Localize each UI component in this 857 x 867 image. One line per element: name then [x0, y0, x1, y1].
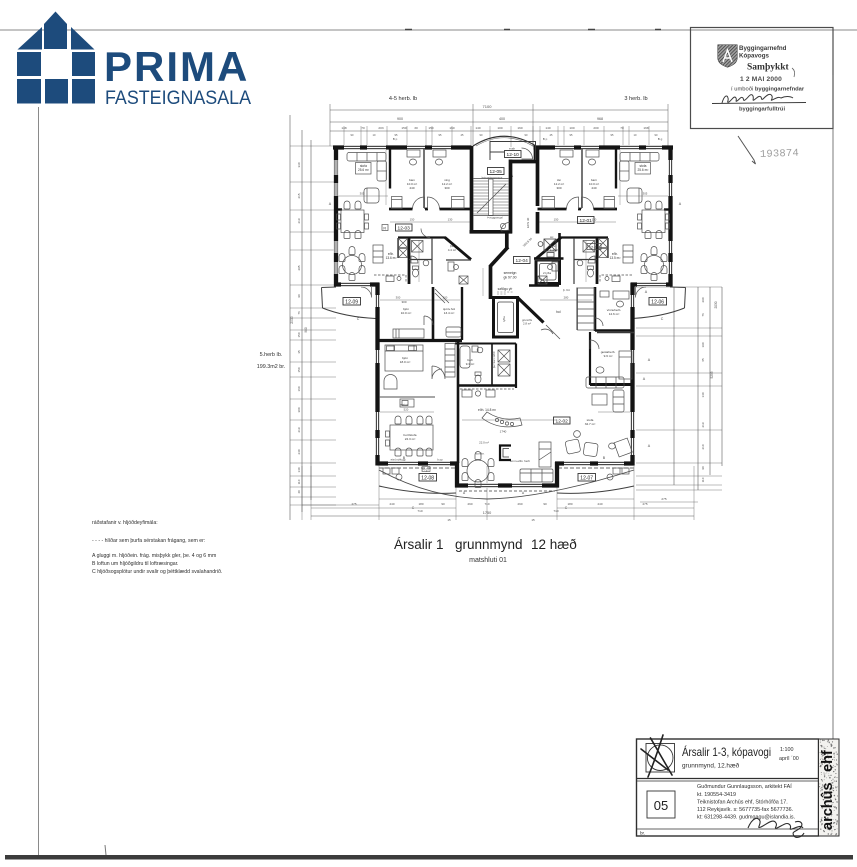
svg-text:710: 710 [417, 509, 422, 513]
svg-text:hol: hol [556, 310, 561, 314]
svg-text:90: 90 [525, 133, 528, 137]
svg-text:eðh. 14.8 m²: eðh. 14.8 m² [478, 407, 496, 412]
svg-text:lyfta: lyfta [502, 316, 506, 322]
svg-text:A gluggi m. hljóðein. frág. m: A gluggi m. hljóðein. frág. misþykk gler… [92, 552, 216, 559]
svg-text:VECS 30: VECS 30 [522, 236, 533, 247]
svg-text:150: 150 [554, 218, 559, 222]
svg-text:br.: br. [640, 831, 645, 836]
svg-text:12-03: 12-03 [398, 226, 411, 232]
svg-text:305: 305 [643, 192, 648, 196]
svg-text:70: 70 [620, 126, 624, 130]
svg-text:150: 150 [410, 218, 415, 222]
svg-text:7100: 7100 [483, 104, 493, 109]
svg-text:150: 150 [428, 126, 433, 130]
svg-text:90: 90 [351, 133, 354, 137]
svg-text:3 herb. lb: 3 herb. lb [624, 96, 647, 102]
svg-text:100: 100 [497, 126, 502, 130]
svg-text:219: 219 [297, 218, 301, 223]
svg-text:B: B [603, 456, 606, 460]
svg-text:240: 240 [297, 449, 301, 454]
svg-text:110: 110 [297, 479, 301, 484]
svg-text:70: 70 [361, 126, 365, 130]
svg-text:12-06: 12-06 [651, 299, 664, 305]
svg-text:95: 95 [439, 133, 442, 137]
svg-text:PRIMA: PRIMA [104, 43, 249, 90]
svg-text:190: 190 [701, 342, 705, 347]
svg-text:þ. föt: þ. föt [563, 288, 570, 292]
svg-text:968: 968 [597, 117, 603, 121]
svg-text:275: 275 [642, 502, 647, 506]
svg-text:kt: 631298-4439. gudmgagu@isla: kt: 631298-4439. gudmgagu@islandia.is. [697, 815, 795, 821]
svg-text:9.3 m²: 9.3 m² [466, 362, 475, 366]
svg-text:219: 219 [701, 422, 705, 427]
svg-text:grunnmynd, 12.hæð: grunnmynd, 12.hæð [682, 762, 740, 770]
svg-text:90: 90 [543, 502, 547, 506]
svg-text:- - - - hlíðar sem þurfa sérst: - - - - hlíðar sem þurfa sérstakan frága… [92, 537, 205, 544]
svg-text:240: 240 [597, 502, 602, 506]
svg-text:110: 110 [701, 477, 705, 482]
svg-text:160: 160 [517, 126, 522, 130]
svg-text:13.6 m²: 13.6 m² [386, 256, 397, 260]
svg-text:hringstigagangur: hringstigagangur [482, 175, 503, 179]
svg-text:520: 520 [404, 408, 409, 412]
svg-text:A: A [679, 202, 682, 206]
svg-text:12-09: 12-09 [345, 299, 358, 305]
svg-text:210: 210 [701, 444, 705, 449]
svg-text:í umboði byggingarnefndar: í umboði byggingarnefndar [731, 86, 805, 93]
svg-text:semeign: semeign [504, 271, 517, 275]
svg-text:300: 300 [444, 186, 449, 190]
svg-text:300: 300 [401, 300, 406, 304]
svg-text:148: 148 [341, 126, 346, 130]
svg-text:35: 35 [297, 350, 301, 354]
svg-text:275: 275 [351, 502, 356, 506]
svg-text:b.op: b.op [437, 458, 443, 462]
svg-text:150: 150 [297, 332, 301, 337]
svg-text:900: 900 [304, 327, 308, 333]
svg-text:160: 160 [449, 126, 454, 130]
svg-text:240: 240 [389, 502, 394, 506]
svg-text:B p: B p [543, 137, 548, 141]
svg-text:12-02: 12-02 [556, 419, 569, 425]
svg-text:Samþykkt: Samþykkt [747, 63, 790, 73]
svg-text:275: 275 [661, 497, 666, 501]
svg-text:2.8 m²: 2.8 m² [523, 322, 531, 326]
svg-text:10.0 m²: 10.0 m² [401, 311, 412, 315]
svg-text:25.6 m²: 25.6 m² [637, 168, 648, 172]
svg-text:12-01: 12-01 [580, 218, 593, 224]
svg-text:Ársalir 1-3, kópavogi: Ársalir 1-3, kópavogi [682, 746, 771, 759]
svg-text:9.6 m²: 9.6 m² [604, 354, 613, 358]
svg-text:gk 97.00: gk 97.00 [503, 276, 516, 280]
svg-text:180: 180 [567, 502, 572, 506]
svg-text:40: 40 [297, 490, 301, 494]
svg-text:140: 140 [297, 467, 301, 472]
svg-text:12-08: 12-08 [421, 475, 434, 481]
svg-text:Guðmundur Gunnlaugsson, arkite: Guðmundur Gunnlaugsson, arkitekt FAÍ [697, 783, 792, 790]
svg-text:A: A [522, 491, 525, 495]
svg-text:A: A [648, 444, 651, 448]
svg-text:apríl ´00: apríl ´00 [779, 756, 799, 762]
svg-text:140: 140 [545, 126, 550, 130]
svg-text:10: 10 [373, 133, 376, 137]
svg-text:300: 300 [297, 407, 301, 412]
svg-text:12-10: 12-10 [507, 152, 520, 158]
svg-text:5295: 5295 [710, 371, 714, 378]
svg-text:95: 95 [395, 133, 398, 137]
svg-text:32.7 m²: 32.7 m² [585, 422, 596, 426]
svg-text:112 Reykjavík. s: 5677735-fax: 112 Reykjavík. s: 5677735-fax 5677736. [697, 807, 793, 813]
svg-text:18.0 m²: 18.0 m² [400, 360, 411, 364]
svg-text:290: 290 [701, 297, 705, 302]
svg-text:svalr: svalr [509, 146, 515, 150]
svg-text:Ársalir 1grunnmynd12 hæð: Ársalir 1grunnmynd12 hæð [394, 537, 577, 552]
svg-text:199.3m2 br.: 199.3m2 br. [257, 364, 285, 370]
svg-text:300: 300 [396, 296, 401, 300]
svg-text:emm-eðlv. herb: emm-eðlv. herb [510, 458, 530, 463]
svg-text:5.herb íb.: 5.herb íb. [260, 352, 283, 358]
svg-text:12.6 m²: 12.6 m² [609, 312, 620, 316]
svg-text:150: 150 [401, 126, 406, 130]
svg-text:215: 215 [297, 193, 301, 198]
svg-text:400: 400 [499, 117, 505, 121]
svg-text:matshluti 01: matshluti 01 [469, 557, 507, 564]
svg-text:90: 90 [701, 466, 705, 470]
svg-text:25.6 m²: 25.6 m² [358, 168, 369, 172]
svg-text:22.0 m²: 22.0 m² [479, 441, 489, 445]
svg-text:12-21: 12-21 [589, 244, 600, 249]
svg-text:95: 95 [570, 133, 573, 137]
svg-text:290: 290 [517, 502, 522, 506]
svg-text:15: 15 [447, 518, 451, 522]
svg-text:4-5 herb. lb: 4-5 herb. lb [389, 96, 417, 102]
svg-text:Þvoggarngsl: Þvoggarngsl [487, 216, 503, 220]
svg-text:R: R [383, 226, 386, 230]
svg-text:Byggingarnefnd: Byggingarnefnd [739, 45, 787, 52]
svg-text:76: 76 [297, 311, 301, 315]
svg-text:C hljóðsogsplötur undir svali: C hljóðsogsplötur undir svalir og þéttkl… [92, 568, 222, 575]
svg-text:A: A [329, 202, 332, 206]
svg-text:13.5 m²: 13.5 m² [610, 256, 621, 260]
svg-text:90: 90 [441, 502, 445, 506]
svg-text:A: A [643, 377, 646, 381]
svg-text:95: 95 [611, 133, 614, 137]
svg-text:140: 140 [701, 392, 705, 397]
svg-text:45: 45 [461, 133, 464, 137]
svg-text:B loftun um hljóðgildru til l: B loftun um hljóðgildru til loftræsingar… [92, 560, 179, 567]
svg-text:FASTEIGNASALA: FASTEIGNASALA [105, 87, 251, 109]
svg-text:kt. 190554-3419: kt. 190554-3419 [697, 792, 736, 798]
svg-text:B g: B g [658, 137, 663, 141]
svg-text:saflögu yfr: saflögu yfr [498, 287, 514, 291]
svg-text:2.lyfta: 2.lyfta [543, 271, 551, 275]
svg-text:160: 160 [297, 386, 301, 391]
svg-text:2030: 2030 [714, 301, 718, 308]
svg-text:240: 240 [591, 186, 596, 190]
svg-text:180: 180 [418, 502, 423, 506]
svg-text:1740: 1740 [500, 430, 507, 434]
svg-text:12-04: 12-04 [516, 258, 529, 264]
svg-text:1 2 MAI 2000: 1 2 MAI 2000 [740, 76, 782, 83]
svg-text:1750: 1750 [483, 511, 491, 515]
svg-text:05: 05 [654, 798, 668, 813]
svg-text:168: 168 [643, 126, 648, 130]
svg-text:B p: B p [393, 137, 398, 141]
svg-text:12-05: 12-05 [490, 169, 503, 175]
svg-text:200: 200 [593, 126, 598, 130]
svg-text:90: 90 [297, 294, 301, 298]
svg-text:240: 240 [409, 186, 414, 190]
svg-text:C: C [357, 317, 360, 321]
svg-text:A: A [463, 491, 466, 495]
svg-text:C: C [661, 317, 664, 321]
svg-text:A: A [648, 358, 651, 362]
svg-text:þurrkari 1200: þurrkari 1200 [492, 351, 496, 368]
svg-text:ráðstafanir v. hljóðdeyfimála:: ráðstafanir v. hljóðdeyfimála: [92, 519, 158, 526]
svg-text:100: 100 [569, 126, 574, 130]
svg-text:R g´r: R g´r [422, 467, 430, 471]
svg-text:Teiknistofan Archûs ehf, Stórh: Teiknistofan Archûs ehf, Stórhöfða 17. [697, 799, 788, 806]
svg-text:Kópavogs: Kópavogs [739, 53, 769, 60]
svg-text:12-07: 12-07 [580, 475, 593, 481]
svg-text:wc: wc [550, 235, 554, 239]
svg-text:900: 900 [397, 117, 403, 121]
svg-text:710: 710 [484, 502, 489, 506]
svg-text:borðkr.: borðkr. [476, 451, 485, 456]
svg-text:A: A [645, 290, 648, 294]
svg-text:ECS 30: ECS 30 [526, 217, 530, 228]
svg-text:10: 10 [634, 133, 637, 137]
svg-text:193874: 193874 [760, 148, 799, 161]
svg-text:byggingarfulltrúi: byggingarfulltrúi [739, 107, 785, 113]
svg-text:290: 290 [467, 502, 472, 506]
svg-text:ehf: ehf [820, 750, 836, 772]
svg-text:150: 150 [297, 367, 301, 372]
svg-text:295: 295 [297, 265, 301, 270]
svg-text:22.3 m²: 22.3 m² [405, 437, 416, 441]
svg-text:archûs: archûs [820, 782, 836, 830]
svg-text:2030: 2030 [290, 316, 294, 324]
svg-text:13.4 m²: 13.4 m² [444, 311, 455, 315]
svg-text:45: 45 [550, 133, 553, 137]
svg-text:130: 130 [448, 218, 453, 222]
svg-text:15: 15 [531, 518, 535, 522]
svg-text:4.4 m²: 4.4 m² [448, 248, 456, 252]
svg-text:330: 330 [297, 162, 301, 167]
svg-text:140: 140 [475, 126, 480, 130]
svg-text:280: 280 [564, 296, 569, 300]
svg-text:90: 90 [480, 133, 483, 137]
svg-text:aeriur: aeriur [400, 403, 407, 407]
svg-text:76: 76 [701, 313, 705, 317]
svg-text:4.4 m²: 4.4 m² [550, 248, 558, 252]
svg-text:300: 300 [556, 186, 561, 190]
svg-text:1:100: 1:100 [780, 747, 794, 753]
svg-text:203: 203 [378, 126, 383, 130]
svg-text:710: 710 [553, 509, 558, 513]
svg-text:30: 30 [414, 126, 418, 130]
svg-text:eiml.mžlv.gg: eiml.mžlv.gg [391, 458, 406, 462]
svg-text:219: 219 [297, 427, 301, 432]
svg-text:65: 65 [701, 358, 705, 362]
